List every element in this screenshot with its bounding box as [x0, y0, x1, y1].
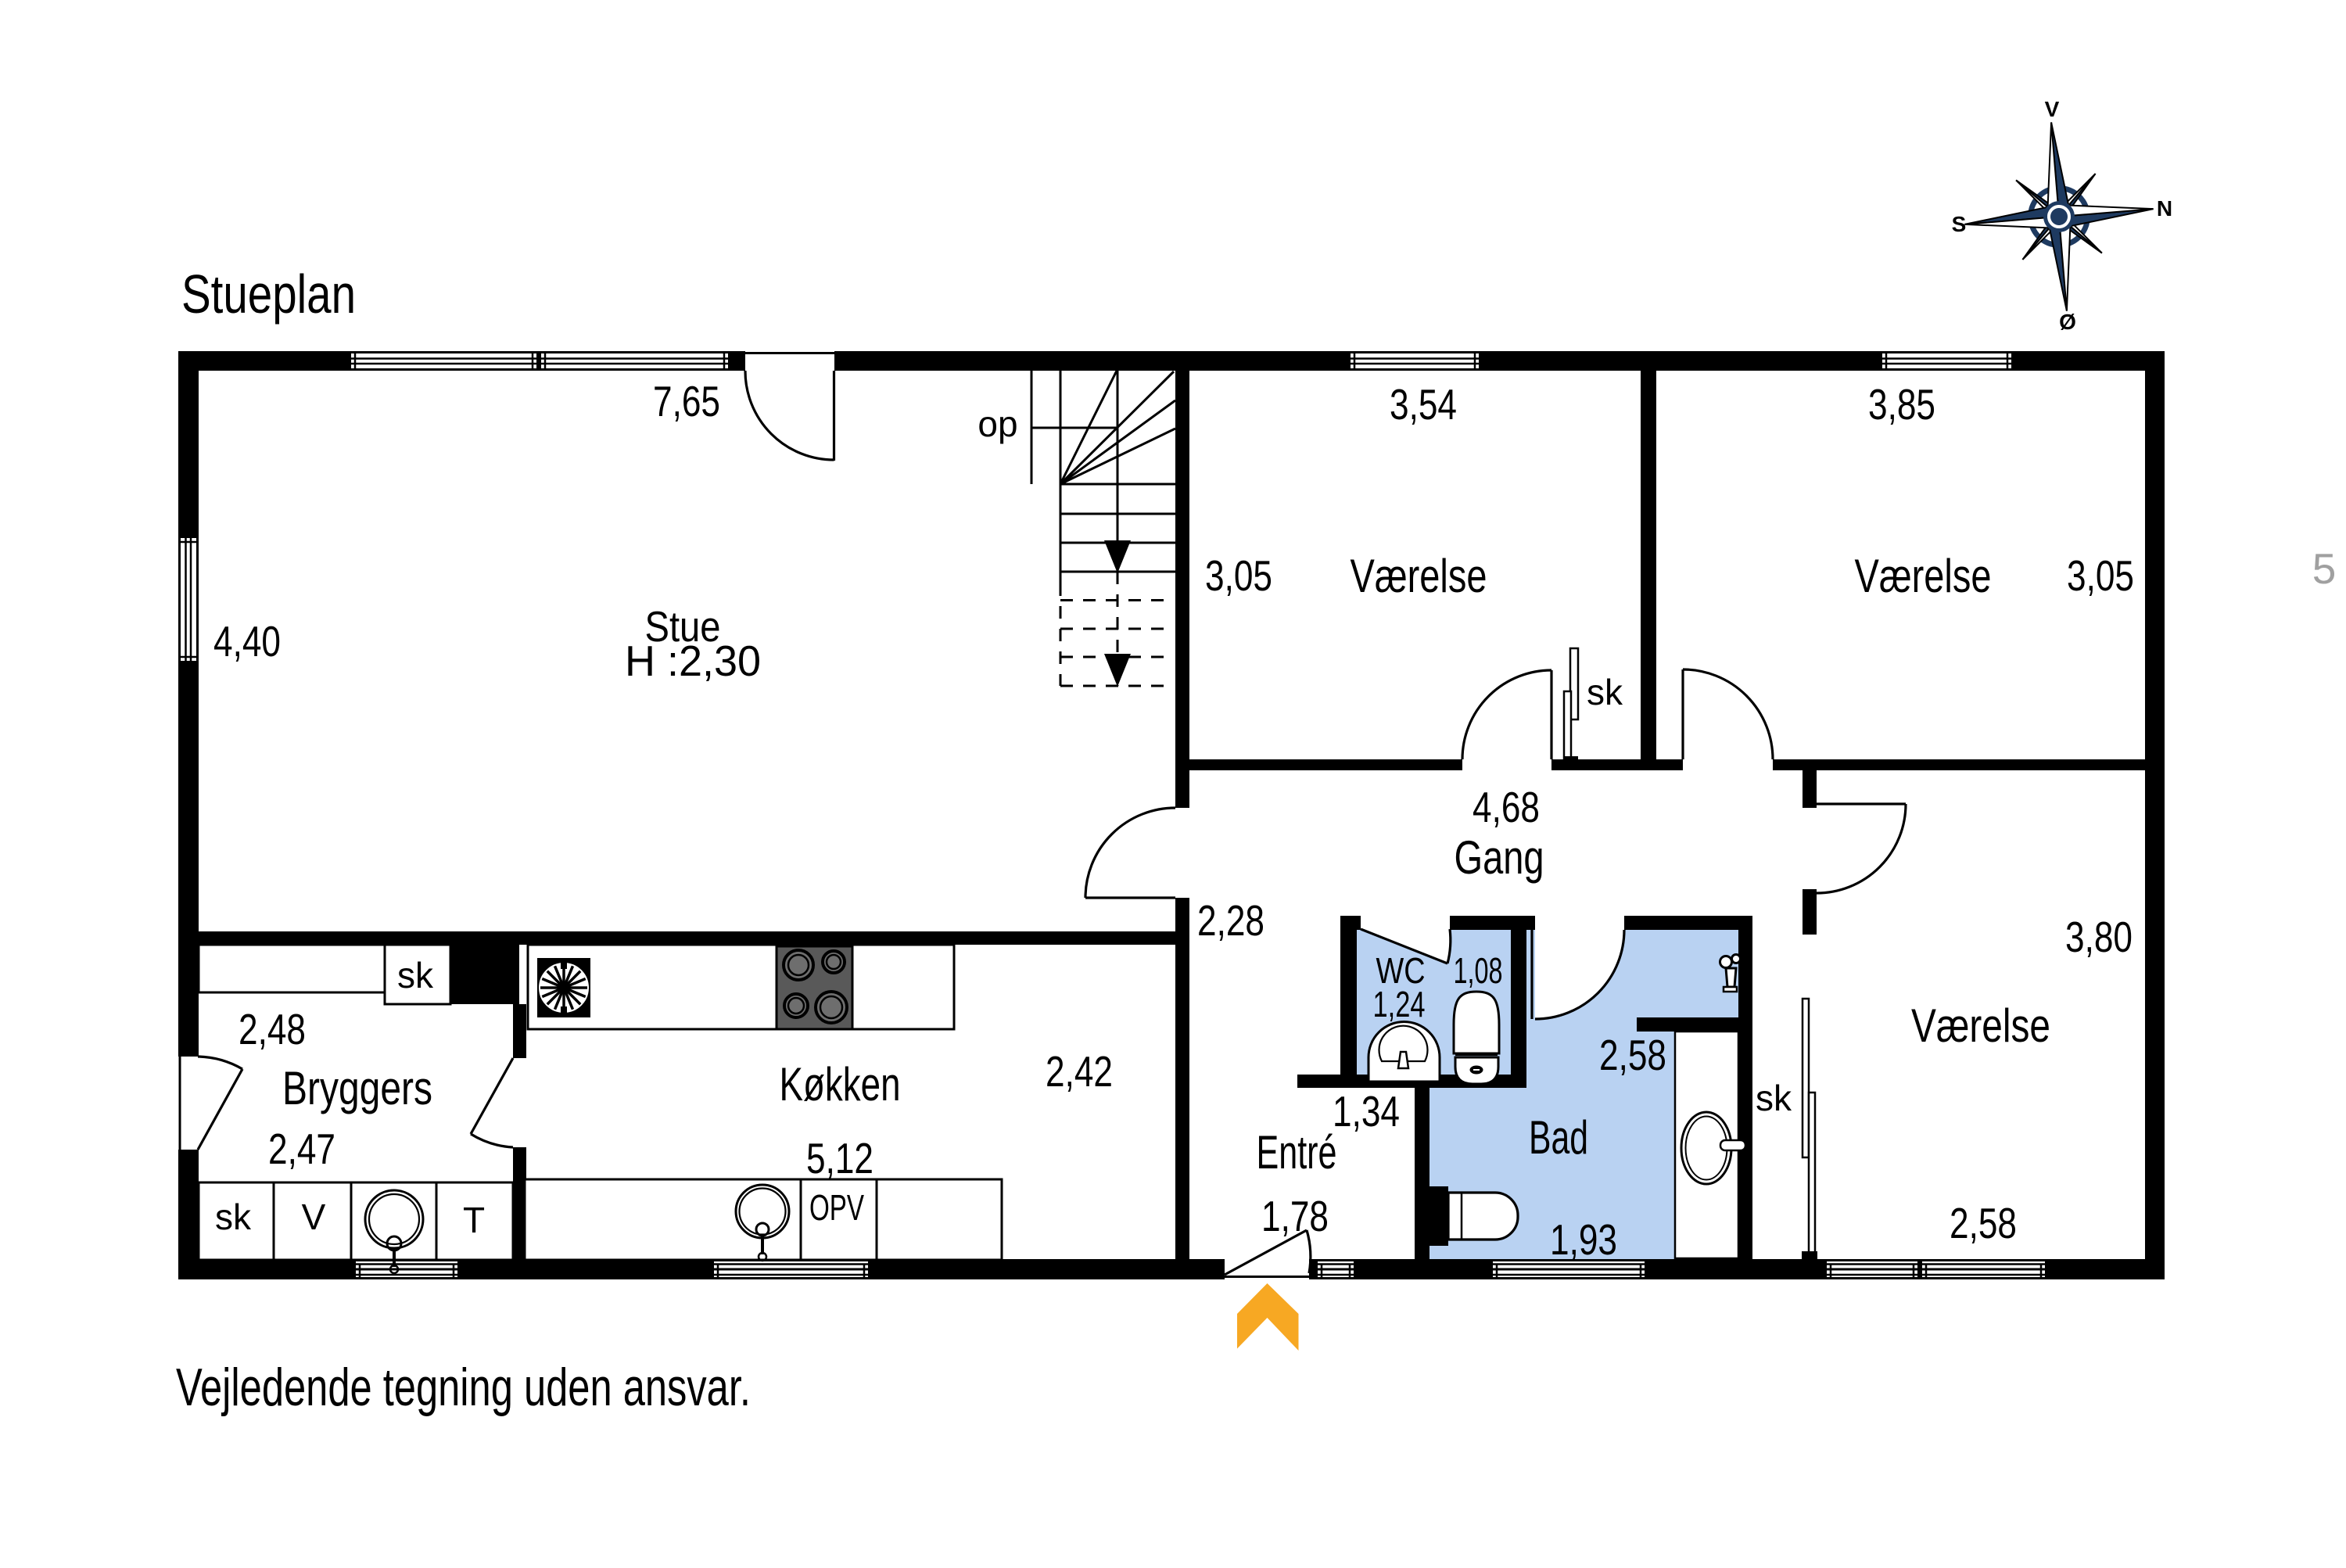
- svg-text:2,58: 2,58: [1599, 1031, 1666, 1079]
- svg-text:V: V: [302, 1197, 326, 1237]
- svg-text:7,65: 7,65: [653, 377, 720, 425]
- svg-text:3,05: 3,05: [2067, 551, 2134, 600]
- svg-text:OPV: OPV: [809, 1187, 864, 1228]
- svg-text:3,80: 3,80: [2065, 913, 2133, 961]
- svg-text:5,12: 5,12: [806, 1134, 873, 1182]
- svg-text:1,24: 1,24: [1373, 984, 1426, 1024]
- svg-text:2,48: 2,48: [239, 1005, 306, 1053]
- svg-text:Køkken: Køkken: [780, 1058, 901, 1111]
- svg-text:4,68: 4,68: [1473, 783, 1540, 831]
- svg-text:Værelse: Værelse: [1911, 999, 2050, 1052]
- svg-text:Bryggers: Bryggers: [282, 1062, 432, 1114]
- svg-text:1,78: 1,78: [1261, 1192, 1329, 1240]
- svg-text:sk: sk: [1756, 1078, 1792, 1118]
- svg-text:3,05: 3,05: [1205, 551, 1272, 600]
- svg-text:2,47: 2,47: [268, 1125, 335, 1173]
- svg-text:3,54: 3,54: [1390, 380, 1457, 429]
- svg-text:Værelse: Værelse: [1351, 550, 1487, 602]
- svg-text:Vejledende tegning uden ansvar: Vejledende tegning uden ansvar.: [176, 1358, 751, 1417]
- svg-text:H :2,30: H :2,30: [625, 637, 761, 685]
- svg-text:Gang: Gang: [1455, 831, 1544, 884]
- svg-text:1,93: 1,93: [1550, 1215, 1617, 1264]
- svg-text:N: N: [2157, 196, 2172, 221]
- svg-text:2,42: 2,42: [1046, 1047, 1113, 1096]
- svg-text:sk: sk: [215, 1197, 252, 1237]
- svg-text:V: V: [2045, 97, 2060, 121]
- svg-text:2,58: 2,58: [1950, 1199, 2017, 1247]
- svg-text:Stueplan: Stueplan: [181, 264, 356, 325]
- svg-text:T: T: [463, 1200, 485, 1240]
- svg-text:3,85: 3,85: [1868, 380, 1935, 429]
- svg-text:Værelse: Værelse: [1855, 550, 1992, 602]
- svg-text:4,40: 4,40: [213, 617, 281, 666]
- svg-text:sk: sk: [397, 955, 434, 996]
- svg-text:5: 5: [2312, 544, 2337, 593]
- svg-text:Entré: Entré: [1257, 1126, 1337, 1179]
- svg-text:Ø: Ø: [2059, 310, 2076, 334]
- svg-text:op: op: [977, 404, 1017, 444]
- svg-text:S: S: [1952, 212, 1967, 236]
- svg-text:1,08: 1,08: [1454, 950, 1503, 991]
- svg-text:Bad: Bad: [1529, 1111, 1588, 1164]
- svg-text:sk: sk: [1587, 672, 1623, 712]
- svg-text:2,28: 2,28: [1197, 896, 1264, 945]
- svg-text:1,34: 1,34: [1333, 1087, 1400, 1136]
